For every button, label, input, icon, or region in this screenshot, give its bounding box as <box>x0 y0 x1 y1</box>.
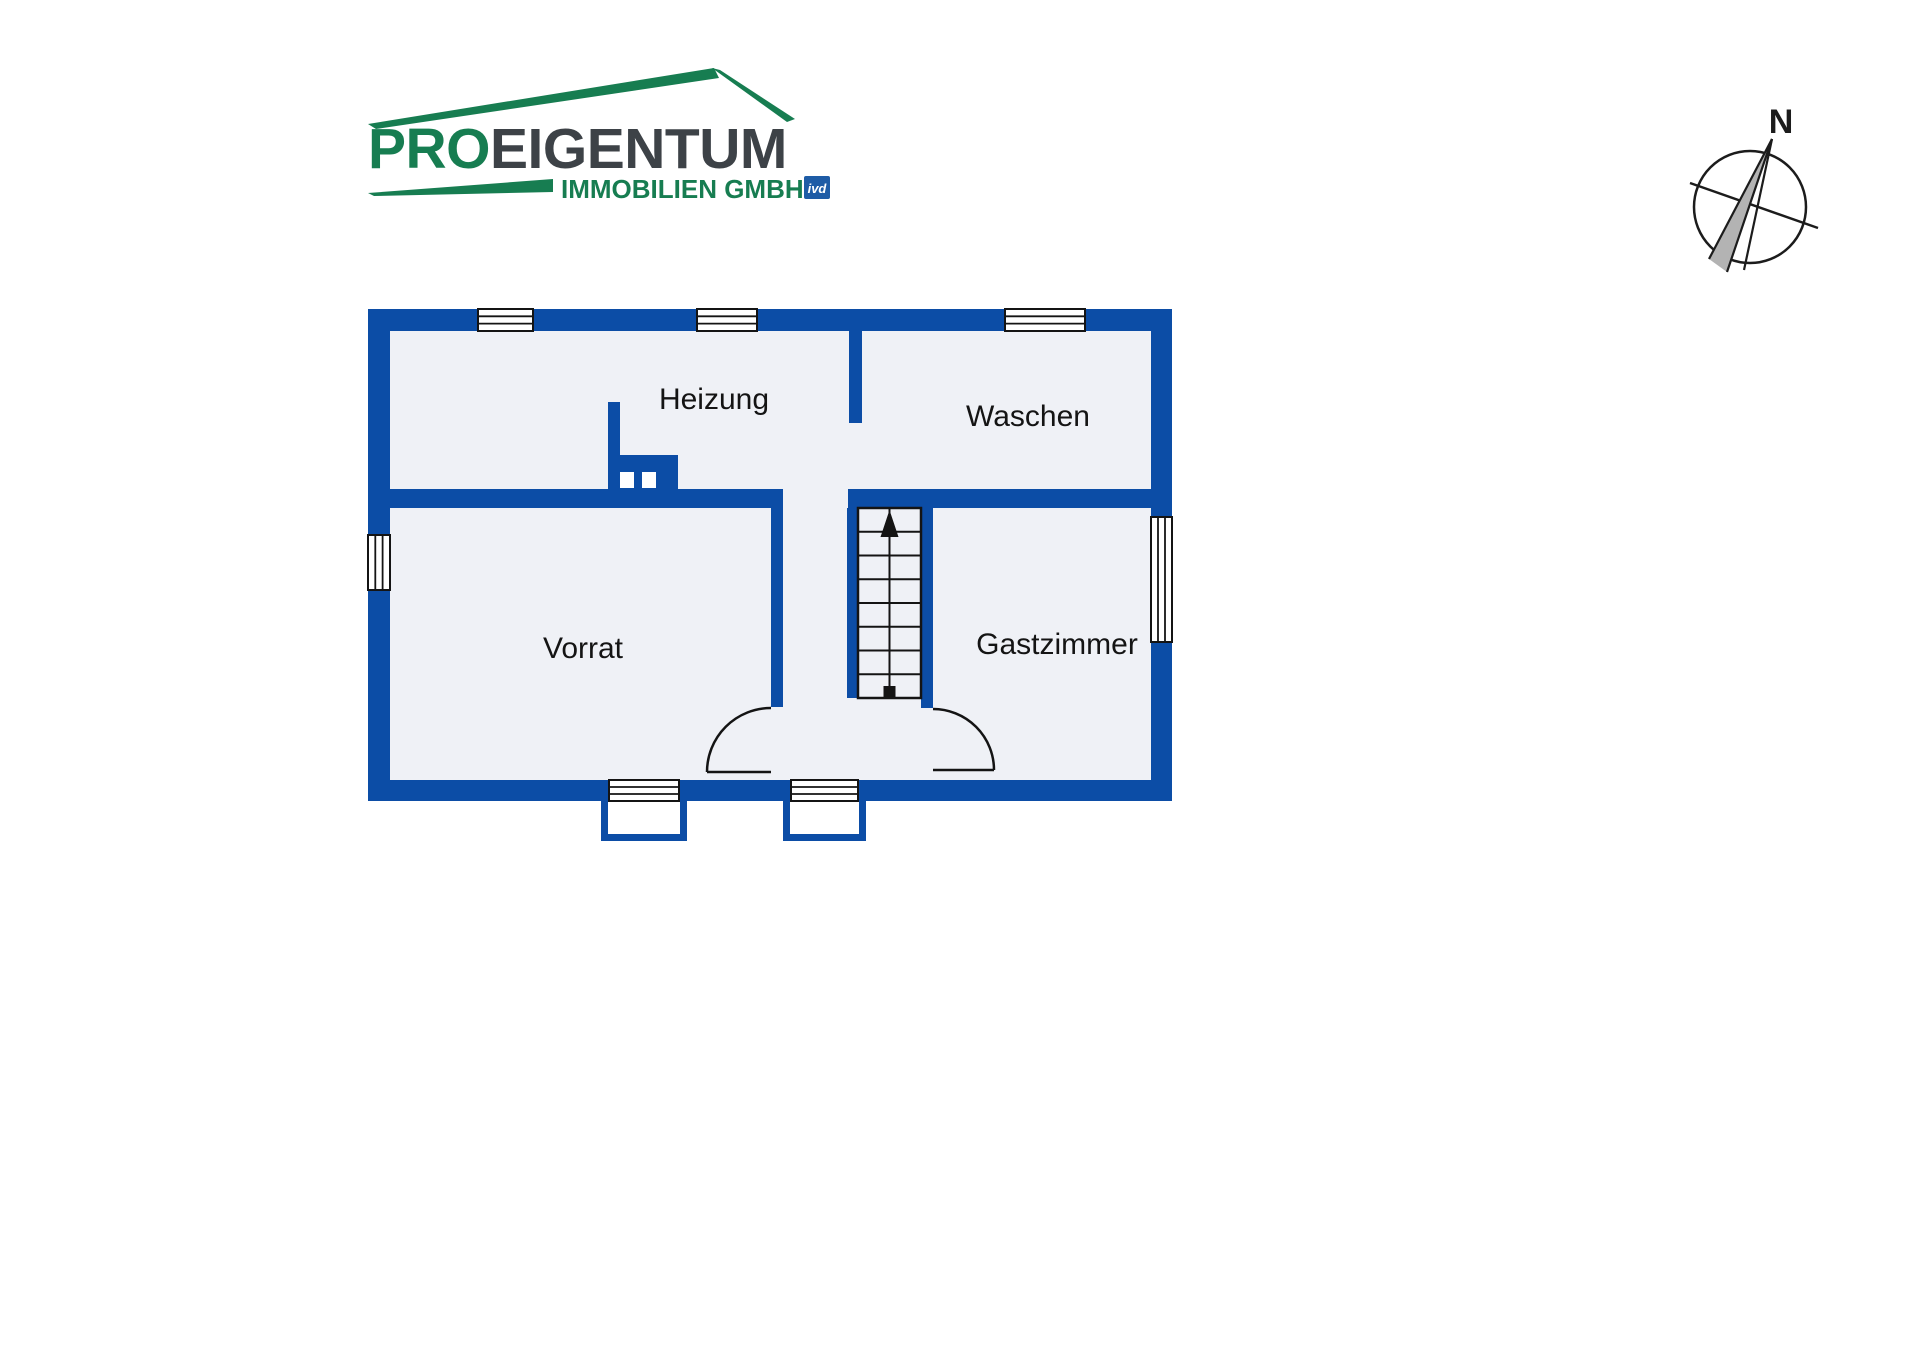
wall-stub-heizung-waschen <box>849 330 862 423</box>
logo-roof-right-stroke <box>712 68 795 122</box>
floor-area <box>389 330 1151 780</box>
staircase-start-marker <box>884 686 896 698</box>
room-label-heizung: Heizung <box>659 383 769 416</box>
room-label-gastzimmer: Gastzimmer <box>976 628 1138 661</box>
room-label-waschen: Waschen <box>966 400 1090 433</box>
porch-left <box>605 801 684 838</box>
window-top-2 <box>697 309 757 331</box>
compass-rose: N <box>1690 103 1818 272</box>
wall-exterior-bottom <box>368 780 1172 801</box>
chimney-vent-right <box>642 472 656 488</box>
ivd-badge-label: ivd <box>808 181 828 196</box>
logo-brand-secondary: EIGENTUM <box>490 117 787 181</box>
window-bottom-1 <box>609 780 679 801</box>
page-canvas: PRO EIGENTUM IMMOBILIEN GMBH ivd N <box>0 0 1920 1357</box>
logo-brand-primary: PRO <box>368 117 490 181</box>
wall-interior-heizung-vorrat <box>368 489 783 508</box>
window-left <box>368 535 390 590</box>
wall-vorrat-hall <box>771 508 783 707</box>
compass-needle-edge-left <box>1709 139 1772 259</box>
chimney-flue-stub <box>608 402 620 455</box>
window-top-3 <box>1005 309 1085 331</box>
compass-needle-edge-mid <box>1727 139 1772 272</box>
chimney-vent-left <box>620 472 634 488</box>
compass-north-label: N <box>1769 103 1794 141</box>
floor-plan: Heizung Waschen Vorrat Gastzimmer <box>368 309 1172 838</box>
staircase <box>858 508 921 698</box>
wall-stairs-right <box>921 508 933 708</box>
wall-interior-waschen-gastzimmer <box>848 489 1172 508</box>
company-logo: PRO EIGENTUM IMMOBILIEN GMBH ivd <box>368 68 830 204</box>
logo-underline-bar <box>368 179 553 196</box>
room-label-vorrat: Vorrat <box>543 632 624 665</box>
window-top-1 <box>478 309 533 331</box>
logo-subtitle: IMMOBILIEN GMBH <box>561 174 804 204</box>
wall-stairs-left <box>847 508 858 698</box>
window-right <box>1151 517 1172 642</box>
porch-right <box>787 801 863 838</box>
window-bottom-2 <box>791 780 858 801</box>
